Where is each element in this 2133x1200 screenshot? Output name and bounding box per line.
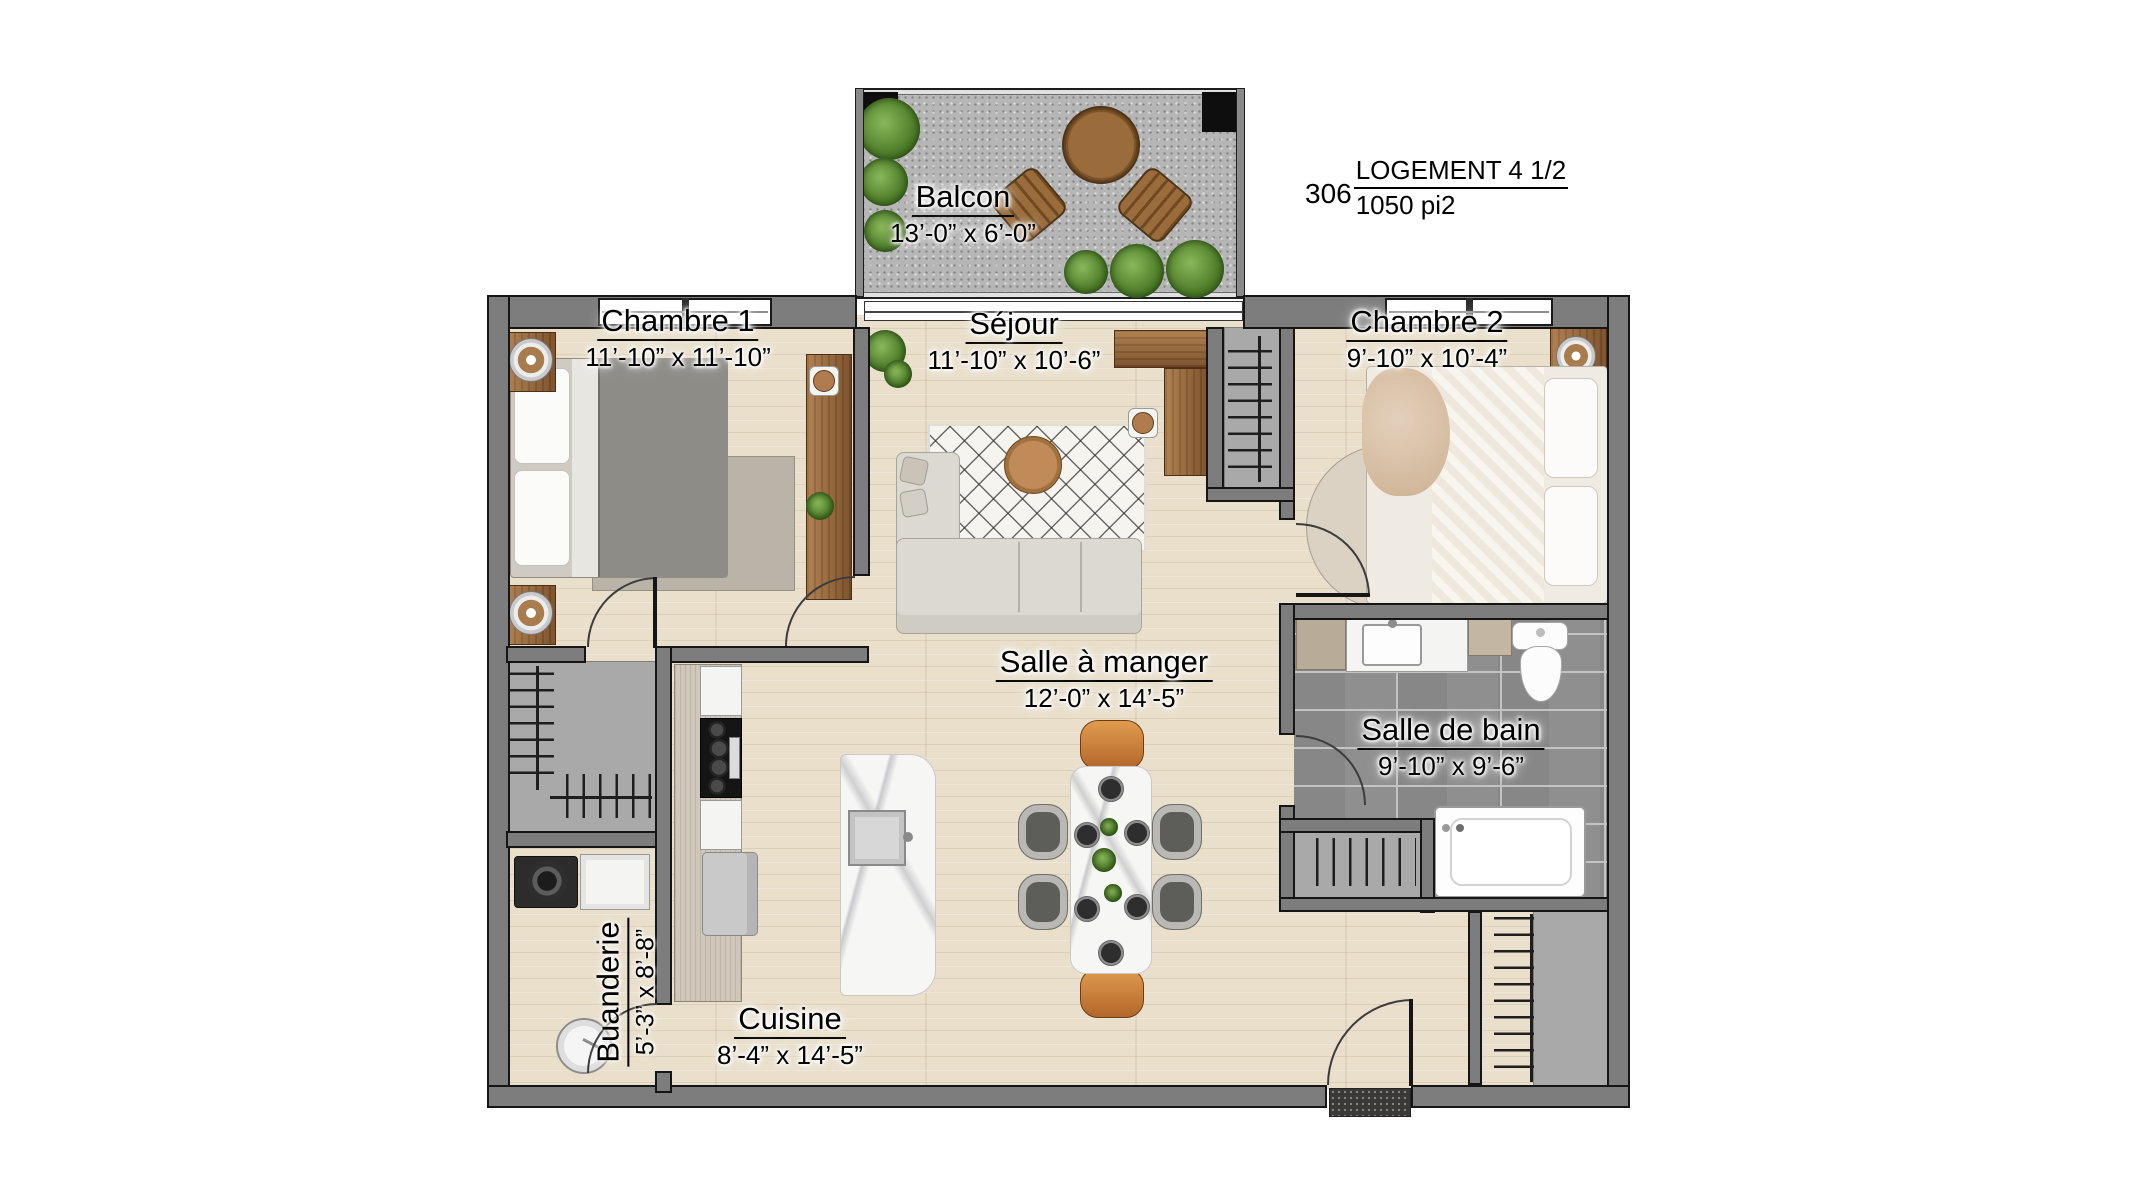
wall-bathroom-bottom <box>1279 897 1609 912</box>
cuisine-name: Cuisine <box>734 1002 845 1039</box>
unit-number: 306 <box>1305 178 1354 210</box>
unit-type-label: LOGEMENT 4 1/2 <box>1354 155 1569 189</box>
chambre1-speaker-bottom <box>509 591 553 635</box>
wall-chambre2-bottom <box>1279 603 1609 620</box>
salle-de-bain-dim: 9’-10” x 9’-6” <box>1357 750 1544 782</box>
dryer <box>580 854 650 910</box>
place-setting <box>1098 940 1124 966</box>
balcon-name: Balcon <box>912 180 1015 217</box>
salle-de-bain-name: Salle de bain <box>1357 713 1544 750</box>
entry-closet-floor <box>1533 909 1609 1087</box>
chambre2-pillow <box>1544 378 1598 478</box>
chambre1-bed-sheet-fold <box>572 359 598 577</box>
sofa-pillow <box>899 456 930 487</box>
kitchen-cabinet <box>700 800 742 850</box>
island-faucet <box>903 832 913 842</box>
wall-chambre1-right <box>853 327 870 576</box>
sejour-desk-stool-top <box>1132 412 1154 434</box>
vanity-faucet <box>1388 619 1397 628</box>
entry-closet-ticks <box>1494 916 1534 1082</box>
range-hood-control <box>729 737 740 779</box>
cuisine-label: Cuisine 8’-4” x 14’-5” <box>717 1002 863 1071</box>
entry-closet-rod <box>1530 914 1533 1082</box>
wall-bathroom-left-upper <box>1279 603 1295 735</box>
kitchen-cabinet <box>700 666 742 716</box>
washer-drum <box>526 860 568 902</box>
toilet-flush-button <box>1536 628 1545 637</box>
sejour-desk-side <box>1164 368 1208 476</box>
dining-chair-gray <box>1152 874 1202 930</box>
chambre1-stool-top <box>813 370 835 392</box>
salle-a-manger-label: Salle à manger 12’-0” x 14’-5” <box>996 645 1213 714</box>
wall-chambre1-bottom-left <box>506 646 586 663</box>
chambre2-dim: 9’-10” x 10’-4” <box>1346 342 1507 374</box>
chambre1-succulent <box>806 492 834 520</box>
chambre1-bed-duvet <box>598 359 727 577</box>
vanity-cabinet-left <box>1296 618 1346 670</box>
balcony-plant <box>1110 244 1164 298</box>
chambre1-pillow <box>514 470 570 566</box>
chambre2-closet-rod <box>1258 336 1261 482</box>
dining-chair-gray <box>1018 804 1068 860</box>
balcony-plant <box>1064 250 1108 294</box>
salle-a-manger-dim: 12’-0” x 14’-5” <box>996 682 1213 714</box>
chambre1-label: Chambre 1 11’-10” x 11’-10” <box>585 304 770 373</box>
salle-de-bain-label: Salle de bain 9’-10” x 9’-6” <box>1357 713 1544 782</box>
place-setting <box>1124 894 1150 920</box>
balcon-label: Balcon 13’-0” x 6’-0” <box>890 180 1036 249</box>
chambre2-name: Chambre 2 <box>1346 305 1507 342</box>
bathtub-faucet <box>1442 824 1450 832</box>
place-setting <box>1074 896 1100 922</box>
table-centerpiece <box>1100 818 1118 836</box>
chambre2-door-leaf <box>1296 593 1370 597</box>
buanderie-label: Buanderie 5’-3” x 8’-8” <box>592 917 659 1066</box>
chambre2-label: Chambre 2 9’-10” x 10’-4” <box>1346 305 1507 374</box>
vanity-sink <box>1362 624 1422 666</box>
place-setting <box>1098 776 1124 802</box>
chambre1-speaker-top <box>509 338 553 382</box>
balcony-wall-left <box>855 88 864 297</box>
entry-door-leaf <box>1409 999 1413 1086</box>
chambre1-closet-rod-bottom <box>550 796 652 799</box>
balcony-table <box>1062 106 1140 184</box>
wall-entry-closet-left <box>1468 911 1482 1085</box>
floor-plan-canvas: 306 LOGEMENT 4 1/2 1050 pi2 Balcon 13’-0… <box>0 0 2133 1200</box>
buanderie-name: Buanderie <box>592 917 629 1066</box>
vanity-cabinet-right <box>1468 616 1512 656</box>
cuisine-dim: 8’-4” x 14’-5” <box>717 1039 863 1071</box>
wall-chambre1-bottom-right <box>655 646 869 663</box>
balcony-wall-right <box>1236 88 1245 297</box>
sofa-cushion-divider <box>1080 542 1082 612</box>
wall-closet1-bottom <box>506 831 657 848</box>
salle-a-manger-name: Salle à manger <box>996 645 1213 682</box>
title-block: 306 LOGEMENT 4 1/2 1050 pi2 <box>1305 155 1568 221</box>
dining-chair-wood-top <box>1080 720 1144 770</box>
chambre1-dim: 11’-10” x 11’-10” <box>585 341 770 373</box>
table-centerpiece <box>1092 848 1116 872</box>
bathtub-basin <box>1450 818 1572 886</box>
kitchen-island <box>840 754 936 996</box>
unit-area-label: 1050 pi2 <box>1354 189 1569 221</box>
linen-closet-hanger-ticks <box>1302 838 1416 886</box>
sejour-name: Séjour <box>965 307 1063 344</box>
sejour-desk-top <box>1114 330 1208 368</box>
bathtub-drain <box>1456 824 1464 832</box>
chambre2-bed-lace-cover <box>1432 367 1544 603</box>
chambre1-closet-rod-left <box>536 666 539 790</box>
table-centerpiece <box>1104 884 1122 902</box>
balcony-plant <box>1166 240 1224 298</box>
balcony-plant <box>858 98 920 160</box>
sofa-pillow <box>899 488 929 518</box>
exterior-wall-bottom-left <box>487 1085 1327 1108</box>
chambre2-closet-ticks <box>1228 338 1272 482</box>
exterior-wall-left <box>487 295 510 1108</box>
sejour-label: Séjour 11’-10” x 10’-6” <box>928 307 1101 376</box>
sejour-dim: 11’-10” x 10’-6” <box>928 344 1101 376</box>
chambre1-closet-ticks-left <box>510 668 554 788</box>
chambre2-pillow <box>1544 486 1598 586</box>
wall-corridor-left <box>1206 327 1224 502</box>
place-setting <box>1074 822 1100 848</box>
island-sink <box>848 810 906 866</box>
dining-chair-gray <box>1152 804 1202 860</box>
buanderie-dim: 5’-3” x 8’-8” <box>629 917 660 1066</box>
sejour-coffee-table <box>1004 436 1062 494</box>
chambre1-name: Chambre 1 <box>597 304 758 341</box>
entry-doormat <box>1329 1088 1411 1117</box>
balcon-dim: 13’-0” x 6’-0” <box>890 217 1036 249</box>
sofa-cushion-divider <box>1018 542 1020 612</box>
sejour-plant-small <box>884 360 912 388</box>
wall-kitchen-vertical-stub <box>655 1071 672 1093</box>
dining-chair-gray <box>1018 874 1068 930</box>
chambre1-door-leaf <box>653 577 657 648</box>
wall-closet2-bottom <box>1206 487 1295 502</box>
exterior-wall-bottom-right <box>1411 1085 1630 1108</box>
refrigerator <box>702 852 758 936</box>
chambre2-throw-blanket <box>1362 368 1450 496</box>
wall-linen-closet-top <box>1279 818 1422 833</box>
place-setting <box>1124 820 1150 846</box>
exterior-wall-right <box>1607 295 1630 1108</box>
dining-chair-wood-bottom <box>1080 968 1144 1018</box>
